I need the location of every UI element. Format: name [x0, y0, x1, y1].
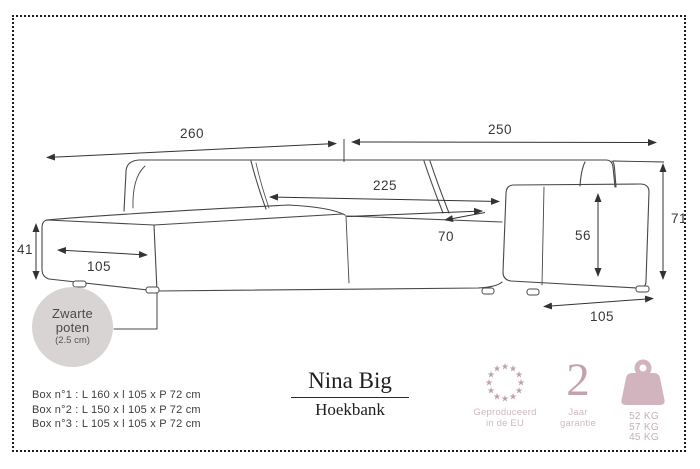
box-specs: Box n°1 : L 160 x l 105 x P 72 cm Box n°… [32, 388, 201, 432]
weight-values: 52 KG 57 KG 45 KG [616, 412, 672, 444]
eu-caption-line2: in de EU [471, 418, 539, 429]
dim-71: 71 [671, 211, 687, 226]
dim-70: 70 [438, 229, 454, 244]
eu-caption-line1: Geproduceerd [471, 407, 539, 418]
weight-value-1: 52 KG [616, 412, 672, 423]
legs-note-line1: Zwarte [32, 307, 113, 321]
spec-sheet: 260 250 225 70 41 105 56 71 105 Zwarte p… [0, 0, 700, 469]
warranty-caption-line2: garantie [550, 418, 606, 429]
dim-56: 56 [575, 228, 591, 243]
product-name: Nina Big [270, 368, 430, 394]
legs-note-line2: poten [32, 321, 113, 335]
eu-stars-icon: ★★ ★★ ★★ ★★ ★★ ★★ [477, 356, 533, 410]
dim-105-left: 105 [87, 259, 111, 274]
weight-icon [620, 359, 666, 409]
warranty-caption: Jaar garantie [550, 407, 606, 429]
dim-250: 250 [488, 122, 512, 137]
dim-105-right: 105 [590, 309, 614, 324]
warranty-caption-line1: Jaar [550, 407, 606, 418]
legs-note-badge: Zwarte poten (2.5 cm) [32, 287, 113, 367]
title-divider [291, 397, 409, 398]
weight-value-3: 45 KG [616, 433, 672, 444]
product-title-block: Nina Big Hoekbank [270, 368, 430, 419]
eu-caption: Geproduceerd in de EU [471, 407, 539, 429]
warranty-number: 2 [556, 355, 600, 405]
dim-260: 260 [180, 126, 204, 141]
sofa-line-art [42, 160, 650, 329]
dim-225: 225 [373, 178, 397, 193]
product-subtitle: Hoekbank [270, 400, 430, 419]
box-spec-1: Box n°1 : L 160 x l 105 x P 72 cm [32, 388, 201, 403]
box-spec-3: Box n°3 : L 105 x l 105 x P 72 cm [32, 417, 201, 432]
dim-41: 41 [17, 242, 33, 257]
legs-note-size: (2.5 cm) [32, 335, 113, 347]
box-spec-2: Box n°2 : L 150 x l 105 x P 72 cm [32, 403, 201, 418]
